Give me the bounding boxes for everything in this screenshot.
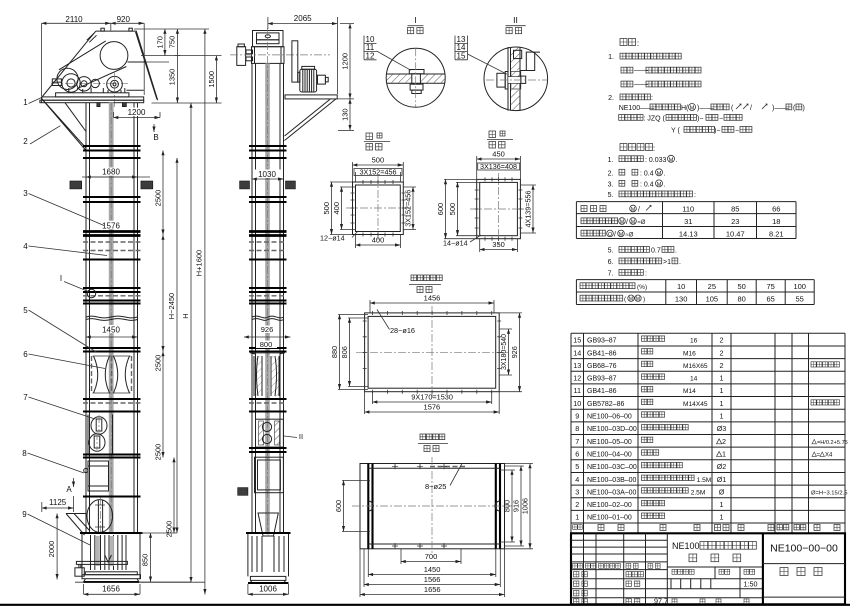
svg-text:2: 2 [720, 361, 724, 370]
svg-text:2500: 2500 [154, 444, 163, 461]
svg-text:Y (: Y ( [671, 128, 680, 135]
svg-text:O: O [608, 232, 612, 238]
svg-text:1: 1 [720, 513, 724, 522]
svg-text:6: 6 [23, 350, 28, 359]
svg-text:18: 18 [772, 217, 780, 226]
svg-text:1006: 1006 [259, 584, 277, 593]
svg-text:1.: 1. [608, 157, 614, 164]
svg-text:80: 80 [738, 295, 746, 304]
svg-text:GB93‒87: GB93‒87 [587, 376, 617, 383]
svg-text:M16X65: M16X65 [683, 363, 708, 370]
svg-text:M16: M16 [683, 350, 696, 357]
svg-text:H+1600: H+1600 [195, 250, 204, 276]
svg-text:−: − [719, 116, 723, 123]
svg-text:)−: )− [714, 128, 720, 135]
svg-text:1576: 1576 [102, 222, 120, 231]
svg-text:10: 10 [573, 399, 581, 408]
svg-text:1: 1 [720, 399, 724, 408]
svg-text:12: 12 [366, 51, 375, 60]
svg-text:−: − [735, 128, 739, 135]
svg-text:450: 450 [492, 150, 505, 159]
svg-text:/: / [750, 105, 752, 112]
svg-text::: : [653, 144, 655, 153]
svg-text::: : [651, 95, 653, 102]
svg-text:M14: M14 [683, 388, 696, 395]
svg-text:M: M [636, 297, 640, 303]
svg-text:23: 23 [731, 217, 739, 226]
svg-text:3X152=456: 3X152=456 [404, 190, 413, 227]
svg-text:5.: 5. [608, 248, 614, 255]
svg-text:14: 14 [690, 376, 698, 383]
svg-text:2000: 2000 [47, 541, 56, 558]
svg-text:NE100−00−00: NE100−00−00 [770, 543, 838, 555]
svg-text:GB41‒86: GB41‒86 [587, 388, 617, 395]
svg-text:): ) [643, 296, 645, 303]
svg-text:2500: 2500 [165, 521, 174, 538]
svg-text:11: 11 [574, 386, 581, 395]
svg-text:7: 7 [575, 437, 579, 446]
svg-text:85: 85 [731, 205, 739, 214]
svg-text:: JZQ (: : JZQ ( [644, 116, 666, 123]
svg-text:NE100‒02‒00: NE100‒02‒00 [587, 502, 632, 509]
svg-text:Ø1: Ø1 [717, 475, 727, 484]
svg-text:170: 170 [155, 36, 164, 49]
svg-text:9: 9 [22, 510, 27, 519]
svg-text:12−ø14: 12−ø14 [320, 234, 345, 243]
svg-text:3X180=540: 3X180=540 [501, 334, 508, 370]
svg-text:M: M [657, 171, 662, 177]
svg-text:750: 750 [167, 36, 176, 49]
svg-text:GB68‒76: GB68‒76 [587, 363, 617, 370]
svg-text:15: 15 [573, 336, 581, 345]
svg-text:≈Ø: ≈Ø [626, 232, 634, 238]
svg-text:2: 2 [720, 348, 724, 357]
svg-text:2: 2 [720, 336, 724, 345]
svg-text:/: / [626, 219, 628, 226]
svg-text:NE100‒04‒00: NE100‒04‒00 [587, 451, 632, 458]
svg-text:2: 2 [722, 437, 726, 446]
svg-text:4: 4 [575, 475, 579, 484]
svg-text:H(: H( [681, 105, 689, 112]
svg-text:)−: )− [697, 116, 703, 123]
svg-text:1: 1 [722, 449, 726, 458]
svg-text:14.13: 14.13 [679, 229, 698, 238]
svg-text:.: . [679, 259, 681, 266]
svg-text:.: . [664, 181, 666, 188]
svg-text:926: 926 [510, 346, 519, 358]
svg-text:/: / [638, 207, 640, 214]
svg-text:NE100‒03A‒00: NE100‒03A‒00 [587, 489, 637, 496]
svg-text:: 0.4: : 0.4 [640, 181, 654, 188]
svg-text:105: 105 [706, 295, 719, 304]
svg-text:12: 12 [573, 374, 581, 383]
svg-text:Ø2: Ø2 [717, 462, 727, 471]
svg-text:NE100‒03B‒00: NE100‒03B‒00 [587, 477, 637, 484]
svg-text:700: 700 [425, 552, 438, 561]
svg-text:130: 130 [675, 295, 688, 304]
svg-text:M: M [629, 297, 633, 303]
svg-text:M: M [631, 220, 635, 226]
svg-text:806: 806 [340, 346, 349, 358]
svg-text:Ø3: Ø3 [717, 424, 727, 433]
svg-text:M: M [657, 182, 662, 188]
svg-text:9: 9 [575, 412, 579, 421]
svg-text:1: 1 [720, 412, 724, 421]
svg-text:II: II [513, 15, 518, 25]
svg-text:3: 3 [575, 487, 579, 496]
svg-text:10: 10 [677, 282, 685, 291]
svg-text:2.: 2. [608, 95, 614, 102]
svg-text:1: 1 [23, 98, 28, 107]
svg-text::: : [694, 192, 696, 199]
svg-text:: 0.4: : 0.4 [640, 170, 654, 177]
svg-text:1656: 1656 [424, 585, 441, 594]
svg-text:GB5782‒86: GB5782‒86 [587, 401, 624, 408]
svg-text:NE100‒03C‒00: NE100‒03C‒00 [587, 464, 637, 471]
svg-text:4X139=556: 4X139=556 [524, 191, 533, 228]
svg-text:7: 7 [23, 393, 28, 402]
svg-text:1030: 1030 [258, 170, 276, 179]
svg-text:1:50: 1:50 [744, 580, 758, 589]
svg-text:2.: 2. [608, 170, 614, 177]
svg-text:NE100‒06‒00: NE100‒06‒00 [587, 414, 632, 421]
svg-text:.: . [675, 248, 677, 255]
svg-text:=: = [817, 452, 821, 458]
svg-text:1: 1 [720, 374, 724, 383]
svg-text:0.7: 0.7 [651, 248, 661, 255]
svg-text:3X136=408: 3X136=408 [480, 162, 517, 171]
svg-text:): ) [803, 105, 805, 112]
svg-text:>1: >1 [663, 259, 671, 266]
svg-text:920: 920 [117, 15, 131, 24]
svg-text:10.47: 10.47 [726, 229, 745, 238]
svg-text:500: 500 [322, 202, 331, 215]
svg-text:1350: 1350 [167, 69, 176, 86]
svg-text:8−ø25: 8−ø25 [425, 482, 446, 491]
svg-text:500: 500 [448, 203, 457, 216]
svg-text:≈Ø: ≈Ø [638, 220, 646, 226]
svg-text:55: 55 [796, 295, 804, 304]
svg-text:2110: 2110 [65, 15, 83, 24]
svg-text:1: 1 [720, 386, 724, 395]
svg-text:M: M [631, 207, 635, 213]
svg-text:: 0.033: : 0.033 [645, 157, 667, 164]
svg-text:1006: 1006 [521, 498, 530, 514]
svg-text:8: 8 [22, 449, 27, 458]
svg-text:M: M [620, 220, 624, 226]
svg-text:66: 66 [772, 205, 780, 214]
svg-text:.: . [664, 170, 666, 177]
svg-text:M: M [619, 232, 623, 238]
svg-text:1.5M: 1.5M [697, 477, 712, 484]
svg-text::: : [645, 271, 647, 278]
svg-text:13: 13 [573, 361, 581, 370]
svg-text:75: 75 [767, 282, 775, 291]
svg-text:NE100——: NE100—— [619, 105, 654, 112]
svg-text:1656: 1656 [102, 585, 120, 594]
svg-text:400: 400 [332, 202, 341, 215]
svg-text:2: 2 [23, 137, 28, 146]
svg-text:1125: 1125 [49, 498, 67, 507]
svg-text:916: 916 [512, 500, 521, 512]
svg-text:1456: 1456 [424, 294, 441, 303]
svg-text:NE100‒05‒00: NE100‒05‒00 [587, 439, 632, 446]
svg-text:H−2450: H−2450 [167, 293, 176, 319]
svg-text:8: 8 [575, 424, 579, 433]
svg-text:350: 350 [492, 240, 505, 249]
svg-text:1: 1 [720, 500, 724, 509]
svg-text:2500: 2500 [154, 190, 163, 207]
svg-text:2500: 2500 [154, 355, 163, 372]
svg-text:GB93‒87: GB93‒87 [587, 338, 617, 345]
svg-text:31: 31 [684, 217, 692, 226]
svg-text:X4: X4 [825, 452, 833, 458]
svg-text:2065: 2065 [294, 14, 312, 23]
svg-text:6.: 6. [608, 259, 614, 266]
svg-text:65: 65 [767, 295, 775, 304]
svg-text:800: 800 [260, 340, 273, 349]
svg-text:A: A [66, 485, 72, 494]
svg-text:Ø: Ø [719, 487, 725, 496]
svg-text:GB41‒86: GB41‒86 [587, 350, 617, 357]
svg-text:880: 880 [330, 346, 339, 358]
svg-text:M: M [690, 106, 695, 112]
svg-text:NE100: NE100 [672, 541, 700, 551]
svg-text:2: 2 [575, 500, 579, 509]
svg-text:16: 16 [690, 338, 698, 345]
svg-text:5: 5 [23, 306, 28, 315]
svg-text:7.: 7. [608, 271, 614, 278]
svg-text:100: 100 [793, 282, 806, 291]
svg-text:14−ø14: 14−ø14 [443, 239, 468, 248]
svg-text:M: M [669, 157, 674, 163]
svg-text:1680: 1680 [102, 168, 120, 177]
svg-text:/: / [614, 231, 616, 238]
svg-text:130: 130 [341, 108, 350, 121]
svg-text:600: 600 [334, 500, 343, 512]
svg-text:1450: 1450 [424, 565, 441, 574]
svg-text:50: 50 [738, 282, 746, 291]
svg-text:3: 3 [23, 189, 28, 198]
svg-text:28−ø16: 28−ø16 [390, 326, 415, 335]
svg-text:1200: 1200 [341, 53, 350, 70]
svg-text:14: 14 [573, 348, 581, 357]
svg-text:926: 926 [261, 325, 274, 334]
svg-text:1566: 1566 [424, 575, 441, 584]
svg-text:15: 15 [457, 51, 466, 60]
svg-text:1: 1 [575, 513, 579, 522]
svg-text:NE100‒01‒00: NE100‒01‒00 [587, 515, 632, 522]
svg-text:Ø=H−3.15/2.5: Ø=H−3.15/2.5 [811, 490, 847, 496]
svg-text:110: 110 [682, 205, 694, 214]
svg-text:M14X45: M14X45 [683, 401, 708, 408]
svg-text:600: 600 [436, 203, 445, 216]
svg-text:B: B [153, 133, 158, 142]
svg-text:4: 4 [23, 242, 28, 251]
svg-text:3X152=456: 3X152=456 [360, 168, 397, 177]
svg-text:(%): (%) [637, 284, 647, 291]
svg-text::: : [637, 39, 639, 48]
svg-text:6: 6 [575, 449, 579, 458]
svg-text:NE100‒03D‒00: NE100‒03D‒00 [587, 426, 637, 433]
svg-text:.: . [676, 157, 678, 164]
svg-text:800: 800 [503, 500, 512, 512]
svg-text:1200: 1200 [128, 108, 146, 117]
svg-text:1450: 1450 [102, 325, 120, 334]
svg-text:25: 25 [708, 282, 716, 291]
svg-text:1576: 1576 [424, 403, 441, 412]
svg-text:500: 500 [372, 156, 385, 165]
svg-text:8.21: 8.21 [769, 229, 784, 238]
svg-text:850: 850 [141, 554, 150, 567]
svg-text:2.5M: 2.5M [691, 489, 706, 496]
svg-text:1.: 1. [608, 54, 614, 61]
svg-text:=H/0.2+5.75: =H/0.2+5.75 [817, 440, 848, 446]
svg-text:H: H [181, 313, 190, 318]
svg-text:1500: 1500 [207, 71, 216, 88]
svg-text:II: II [299, 432, 303, 441]
svg-text:5.: 5. [608, 192, 614, 199]
svg-text:I: I [414, 15, 416, 25]
svg-text:9X170=1530: 9X170=1530 [411, 393, 453, 402]
svg-text:5: 5 [575, 462, 579, 471]
svg-text:3.: 3. [608, 181, 614, 188]
svg-text:I: I [60, 274, 62, 283]
svg-text:400: 400 [372, 236, 385, 245]
